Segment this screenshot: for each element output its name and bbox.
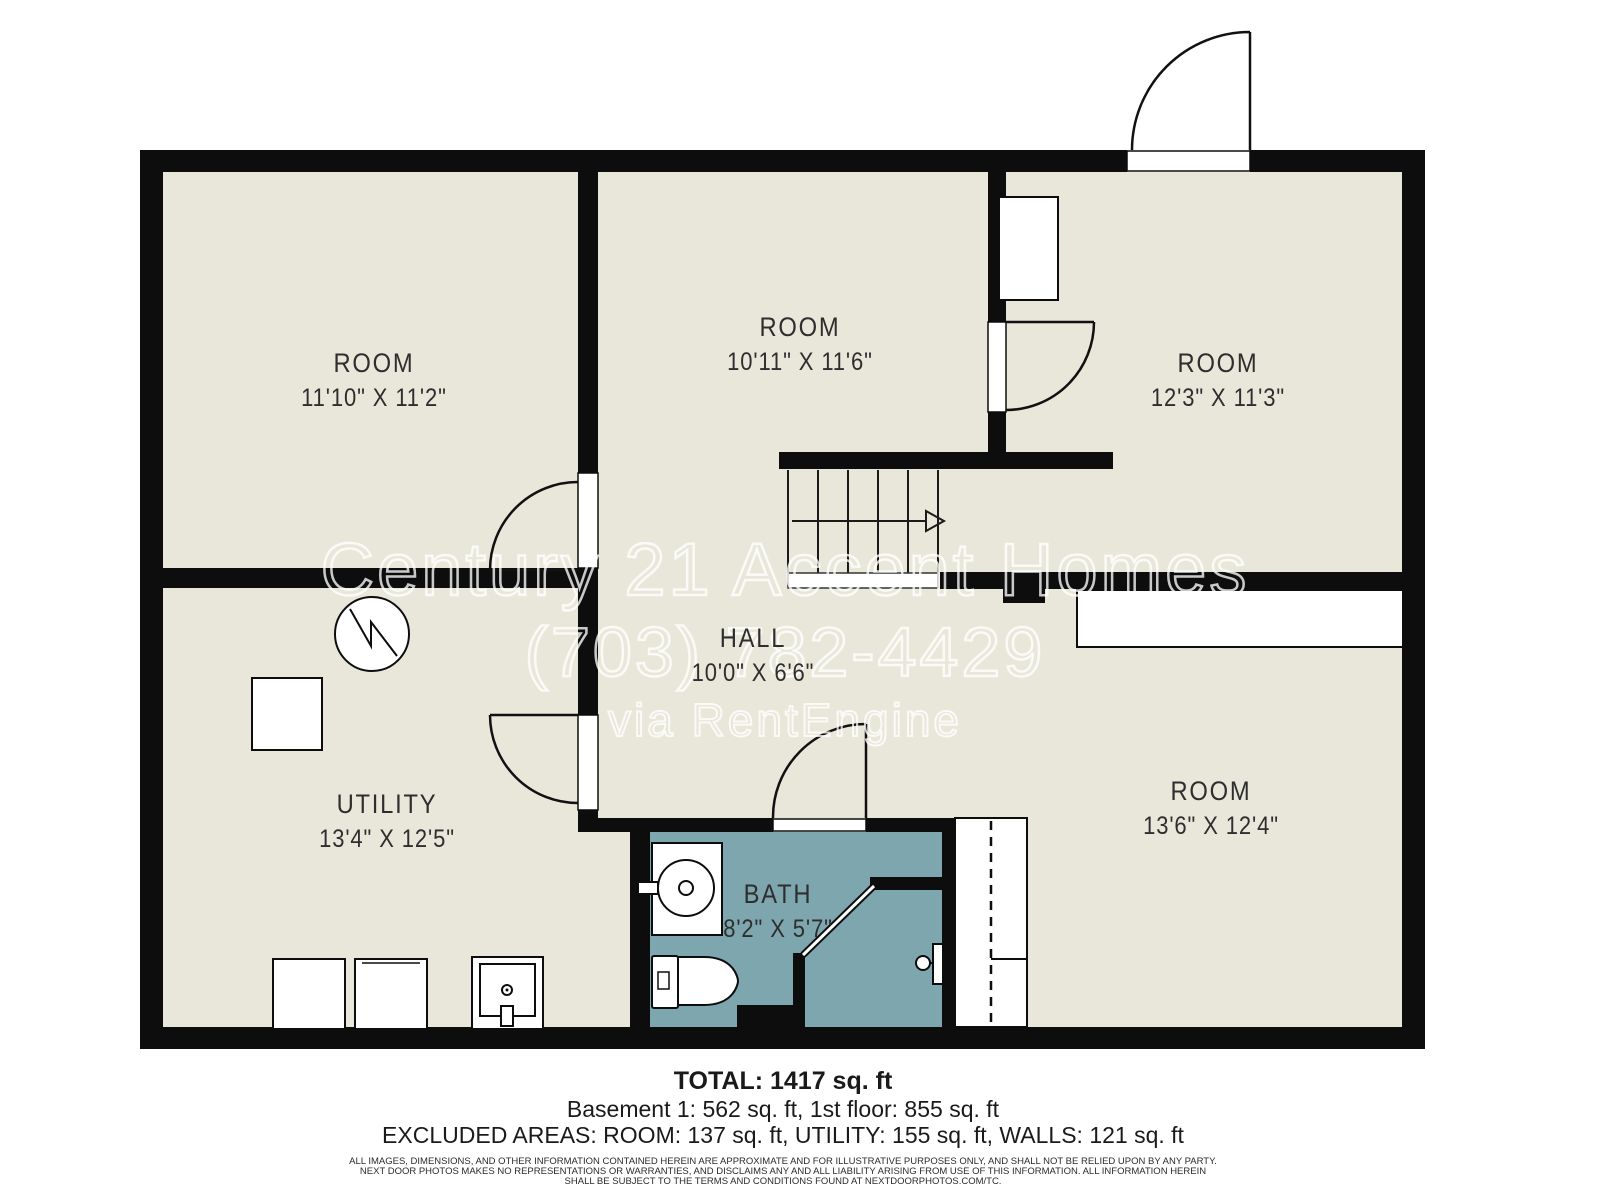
wall-room2-room3-lower: [988, 412, 1006, 453]
disclaimer: ALL IMAGES, DIMENSIONS, AND OTHER INFORM…: [133, 1157, 1433, 1186]
outer-wall-top-right: [1250, 150, 1425, 172]
opening-entry: [1127, 151, 1250, 171]
wall-hall-utility-low: [578, 810, 598, 832]
total-area: TOTAL: 1417 sq. ft: [133, 1066, 1433, 1096]
watermark-line1: Century 21 Accent Homes: [321, 533, 1250, 607]
room-dims: 8'2" X 5'7": [723, 917, 833, 942]
room-name: ROOM: [1143, 778, 1279, 805]
room-label-hall: HALL 10'0" X 6'6": [692, 625, 815, 686]
room-label-top-right: ROOM 12'3" X 11'3": [1151, 350, 1285, 411]
room-name: BATH: [723, 881, 833, 908]
bath-bottom-protrusion: [737, 1005, 795, 1028]
excluded-areas-line: EXCLUDED AREAS: ROOM: 137 sq. ft, UTILIT…: [133, 1122, 1433, 1148]
opening-utility: [578, 715, 598, 810]
room-dims: 13'6" X 12'4": [1143, 814, 1279, 839]
watermark-line3: via RentEngine: [608, 697, 962, 743]
wall-room1-hall-upper: [578, 172, 598, 473]
room-label-top-left: ROOM 11'10" X 11'2": [301, 350, 447, 411]
room-name: ROOM: [727, 314, 873, 341]
room-name: HALL: [692, 625, 815, 652]
room-label-bath: BATH 8'2" X 5'7": [723, 881, 833, 942]
wall-stair-top: [779, 452, 1113, 469]
bath-wall-right: [942, 832, 955, 1027]
bath-wall-top-right: [866, 818, 955, 832]
door-entry: [1132, 32, 1250, 150]
floor-plan-page: Century 21 Accent Homes (703) 782-4429 v…: [0, 0, 1600, 1200]
room-label-utility: UTILITY 13'4" X 12'5": [319, 791, 455, 852]
outer-wall-bottom: [140, 1027, 1425, 1049]
outer-wall-top-left: [140, 150, 1127, 172]
room-dims: 12'3" X 11'3": [1151, 386, 1285, 411]
toilet: [652, 956, 738, 1008]
outer-wall-right: [1402, 150, 1425, 1049]
faucet-icon: [638, 882, 658, 894]
room-dims: 13'4" X 12'5": [319, 827, 455, 852]
floor-areas-line: Basement 1: 562 sq. ft, 1st floor: 855 s…: [133, 1096, 1433, 1122]
room-name: ROOM: [1151, 350, 1285, 377]
room-dims: 10'11" X 11'6": [727, 350, 873, 375]
room-dims: 10'0" X 6'6": [692, 661, 815, 686]
opening-room3: [988, 322, 1006, 412]
room-name: UTILITY: [319, 791, 455, 818]
outer-wall-left: [140, 150, 163, 1049]
shower-wall: [870, 877, 942, 890]
washer: [273, 959, 345, 1029]
bath-wall-top-left: [598, 818, 773, 832]
bath-wall-left: [630, 832, 650, 1027]
laundry-sink: [472, 957, 543, 1029]
room-label-top-middle: ROOM 10'11" X 11'6": [727, 314, 873, 375]
room-name: ROOM: [301, 350, 447, 377]
summary-footer: TOTAL: 1417 sq. ft Basement 1: 562 sq. f…: [133, 1066, 1433, 1186]
dryer: [355, 959, 427, 1029]
closet-room3: [999, 197, 1058, 300]
room-dims: 11'10" X 11'2": [301, 386, 447, 411]
disclaimer-line3: SHALL BE SUBJECT TO THE TERMS AND CONDIT…: [133, 1177, 1433, 1187]
room-label-bottom-right: ROOM 13'6" X 12'4": [1143, 778, 1279, 839]
furnace: [252, 678, 322, 750]
bifold-closet: [955, 818, 1027, 1027]
opening-bath: [773, 819, 866, 831]
